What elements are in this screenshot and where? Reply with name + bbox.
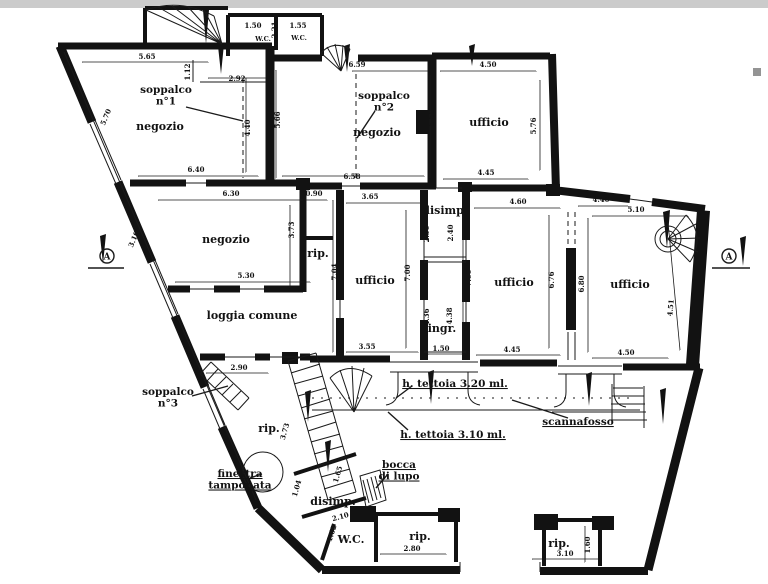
dimension-text-18: 3.65: [361, 192, 378, 201]
room-label-ufficio-2: ufficio: [355, 274, 394, 287]
dimension-text-36: 1.50: [432, 344, 449, 353]
annotation-finestra-tamponata-line-1: finestra: [217, 468, 262, 480]
dimension-text-11: 4.50: [479, 60, 496, 69]
dimension-text-39: 2.90: [230, 363, 247, 372]
dimension-text-26: 2.50: [422, 225, 431, 242]
dimension-text-25: 7.00: [403, 264, 412, 281]
annotation-soppalco-1-line-1: soppalco: [140, 84, 192, 96]
dimension-text-2: 2.92: [228, 74, 245, 83]
room-label-ufficio-1: ufficio: [469, 116, 508, 129]
dimension-text-28: 7.00: [464, 269, 473, 286]
floor-plan-drawing: A A negozionegozionegozioufficioufficiou…: [0, 0, 768, 584]
dimension-text-43: 2.10: [331, 510, 350, 523]
room-label-disimp-1: disimp.: [422, 204, 467, 217]
room-label-rip-1: rip.: [307, 247, 329, 260]
dimension-text-20: 4.40: [592, 195, 609, 204]
dimension-text-1: 1.12: [183, 63, 192, 80]
dimension-text-12: 5.76: [529, 117, 538, 134]
dimension-text-29: 6.76: [547, 271, 556, 288]
annotation-h-tettoia-310-line-1: h. tettoia 3.10 ml.: [400, 429, 506, 441]
dimension-text-19: 4.60: [509, 197, 526, 206]
room-label-ufficio-3: ufficio: [494, 276, 533, 289]
dimension-text-10: 5.60: [427, 109, 436, 126]
dimension-text-41: 1.65: [331, 465, 344, 484]
dimension-text-15: 4.45: [477, 168, 494, 177]
room-label-negozio-1: negozio: [136, 120, 184, 133]
annotation-h-tettoia-320: h. tettoia 3.20 ml.: [402, 378, 508, 390]
room-label-negozio-3: negozio: [202, 233, 250, 246]
dimension-text-8: 4.40: [243, 119, 252, 136]
dimension-text-14: 6.58: [343, 172, 360, 181]
dimension-text-33: 4.36: [422, 308, 431, 325]
scan-artifact-mark: [753, 68, 761, 76]
dimension-text-3: 1.50: [244, 21, 261, 30]
annotation-h-tettoia-310: h. tettoia 3.10 ml.: [400, 429, 506, 441]
dimension-text-45: 2.80: [403, 544, 420, 553]
section-flag-icon: [740, 236, 746, 266]
dimension-text-35: 3.55: [358, 342, 375, 351]
dimension-text-5: 1.55: [289, 21, 306, 30]
dimension-text-23: 3.73: [287, 221, 296, 238]
section-marker-right: A: [712, 236, 750, 268]
dimension-text-31: 4.51: [665, 299, 675, 317]
dimension-text-37: 4.45: [503, 345, 520, 354]
annotation-finestra-tamponata-line-2: tamponata: [208, 480, 271, 492]
dimension-text-4: 2.21: [270, 21, 279, 38]
dimension-text-30: 6.80: [577, 275, 586, 292]
annotation-soppalco-2: soppalcon°2: [358, 90, 410, 114]
annotation-finestra-tamponata: finestratamponata: [208, 468, 271, 492]
room-label-loggia-comune: loggia comune: [207, 309, 298, 322]
annotation-soppalco-3: soppalcon°3: [142, 386, 194, 410]
annotation-soppalco-2-line-2: n°2: [374, 102, 394, 114]
room-label-wc-2: W.C.: [290, 34, 307, 42]
room-label-ufficio-4: ufficio: [610, 278, 649, 291]
dimension-text-16: 6.30: [222, 189, 239, 198]
annotation-soppalco-1: soppalcon°1: [140, 84, 192, 108]
dimension-text-7: 5.70: [98, 107, 113, 126]
dimension-text-34: 4.38: [445, 307, 454, 324]
floor-plan-page: A A negozionegozionegozioufficioufficiou…: [0, 0, 768, 584]
dimension-text-40: 3.73: [278, 422, 291, 441]
room-label-wc-3: W.C.: [337, 533, 365, 546]
section-marker-left: A: [88, 234, 124, 268]
dimension-text-0: 5.65: [138, 52, 155, 61]
scan-edge-band: [0, 0, 768, 8]
room-label-disimp-2: disimp.: [310, 495, 355, 508]
annotation-scannafosso: scannafosso: [542, 416, 614, 428]
annotation-soppalco-3-line-1: soppalco: [142, 386, 194, 398]
dimension-text-38: 4.50: [617, 348, 634, 357]
annotation-bocca-di-lupo: boccadi lupo: [379, 459, 420, 483]
room-label-wc-1: W.C.: [254, 35, 271, 43]
section-letter-left: A: [103, 253, 112, 263]
dimension-text-46: 3.10: [556, 549, 573, 558]
dimension-text-13: 6.40: [187, 165, 204, 174]
annotation-bocca-di-lupo-line-2: di lupo: [379, 471, 420, 483]
room-label-rip-3: rip.: [409, 530, 431, 543]
dimension-text-47: 1.60: [583, 536, 592, 553]
dimension-text-42: 1.04: [290, 479, 303, 498]
dimension-text-44: 1.62: [325, 524, 339, 543]
annotation-bocca-di-lupo-line-1: bocca: [382, 459, 416, 471]
room-label-negozio-2: negozio: [353, 126, 401, 139]
annotation-h-tettoia-320-line-1: h. tettoia 3.20 ml.: [402, 378, 508, 390]
room-label-rip-2: rip.: [258, 422, 280, 435]
dimension-text-24: 7.04: [330, 263, 339, 280]
annotation-soppalco-3-line-2: n°3: [158, 398, 178, 410]
section-letter-right: A: [725, 253, 734, 263]
annotation-scannafosso-line-1: scannafosso: [542, 416, 614, 428]
annotation-soppalco-1-line-2: n°1: [156, 96, 176, 108]
dimension-text-6: 6.59: [348, 60, 365, 69]
annotation-soppalco-2-line-1: soppalco: [358, 90, 410, 102]
dimension-text-32: 5.30: [237, 271, 254, 280]
dimension-text-17: 0.90: [305, 189, 322, 198]
dimension-text-9: 5.66: [273, 111, 282, 128]
dimension-text-27: 2.40: [446, 224, 455, 241]
dimension-text-21: 5.10: [627, 205, 644, 214]
